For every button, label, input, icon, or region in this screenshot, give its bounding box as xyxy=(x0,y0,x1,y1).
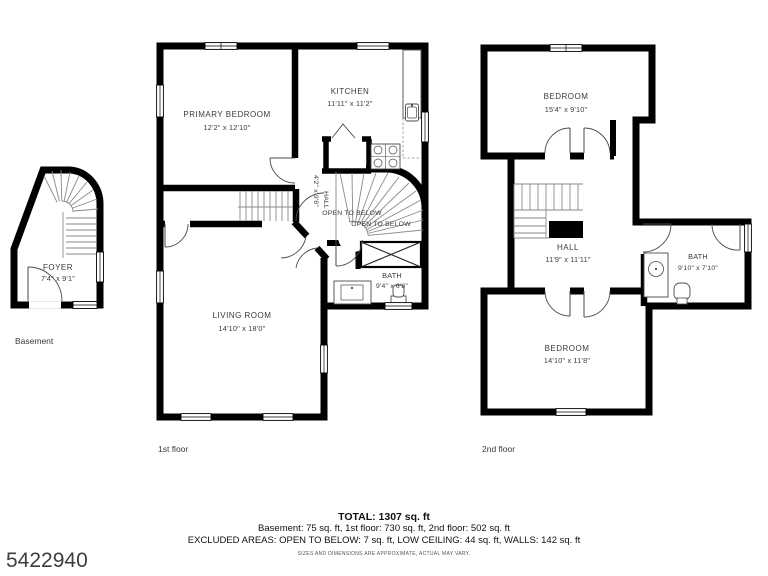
kitchen-label: KITCHEN xyxy=(331,87,370,96)
primary-bedroom-label: PRIMARY BEDROOM xyxy=(183,110,270,119)
bath2-dims: 9'10" x 7'10" xyxy=(678,265,718,272)
open-to-below-1: OPEN TO BELOW xyxy=(322,210,382,217)
floorplan-canvas: FOYER 7'4" x 9'1" xyxy=(0,0,768,576)
bath1-dims: 9'4" x 6'8" xyxy=(376,283,408,290)
window-living-right xyxy=(321,345,328,373)
window-living-bottom-1 xyxy=(181,414,211,421)
window-bath-bottom xyxy=(385,303,412,310)
bath1-label: BATH xyxy=(382,271,402,280)
summary-excluded: EXCLUDED AREAS: OPEN TO BELOW: 7 sq. ft,… xyxy=(0,535,768,547)
window-kitchen-right xyxy=(422,112,429,142)
living-room-label: LIVING ROOM xyxy=(213,311,272,320)
window-bath2-right xyxy=(745,224,752,252)
basement-plan: FOYER 7'4" x 9'1" xyxy=(14,170,104,309)
basement-window-right xyxy=(97,252,104,282)
second-floor-caption: 2nd floor xyxy=(482,444,515,454)
primary-bedroom-dims: 12'2" x 12'10" xyxy=(204,123,251,132)
foyer-label: FOYER xyxy=(43,263,73,272)
bath2-vanity xyxy=(644,253,668,297)
window-bedroom-top xyxy=(205,43,237,50)
second-floor-plan: BEDROOM 15'4" x 9'10" HALL 11'9" x 11'11… xyxy=(484,45,751,416)
window-kitchen-top xyxy=(357,43,389,50)
first-floor-plan: PRIMARY BEDROOM 12'2" x 12'10" KITCHEN 1… xyxy=(157,43,429,421)
hall2-dims: 11'9" x 11'11" xyxy=(545,255,590,264)
bedroom-top-label: BEDROOM xyxy=(544,92,589,101)
hall1-label: HALL xyxy=(322,191,329,209)
summary-disclaimer: SIZES AND DIMENSIONS ARE APPROXIMATE, AC… xyxy=(0,551,768,557)
bath2-label: BATH xyxy=(688,252,708,261)
living-room-dims: 14'10" x 18'0" xyxy=(219,324,266,333)
basement-caption: Basement xyxy=(15,336,53,346)
hall2-label: HALL xyxy=(557,243,579,252)
kitchen-dims: 11'11" x 11'2" xyxy=(327,99,372,108)
second-floor-outer-walls xyxy=(484,48,748,412)
bath1-vanity xyxy=(334,281,371,304)
area-summary: TOTAL: 1307 sq. ft Basement: 75 sq. ft, … xyxy=(0,511,768,557)
bedroom-bottom-label: BEDROOM xyxy=(545,344,590,353)
window-living-left xyxy=(157,271,164,303)
window-bedroom-left xyxy=(157,85,164,117)
stove xyxy=(371,144,400,169)
foyer-dims: 7'4" x 9'1" xyxy=(41,274,75,283)
stairwell-opening xyxy=(549,221,583,238)
summary-by-floor: Basement: 75 sq. ft, 1st floor: 730 sq. … xyxy=(0,523,768,535)
summary-total: TOTAL: 1307 sq. ft xyxy=(0,511,768,523)
window-living-bottom-2 xyxy=(263,414,293,421)
window-bedroombottom-bottom xyxy=(556,409,586,416)
open-to-below-2: OPEN TO BELOW xyxy=(351,221,411,228)
bedroom-top-dims: 15'4" x 9'10" xyxy=(545,105,588,114)
bedroom-bottom-dims: 14'10" x 11'8" xyxy=(544,356,591,365)
basement-window-bottom xyxy=(73,302,97,309)
hall1-dims: 4'2" x 9'6" xyxy=(312,175,319,207)
first-floor-caption: 1st floor xyxy=(158,444,188,454)
window-bedroomtop-top xyxy=(550,45,582,52)
listing-id: 5422940 xyxy=(6,549,88,573)
low-ceiling-marker xyxy=(361,242,421,267)
